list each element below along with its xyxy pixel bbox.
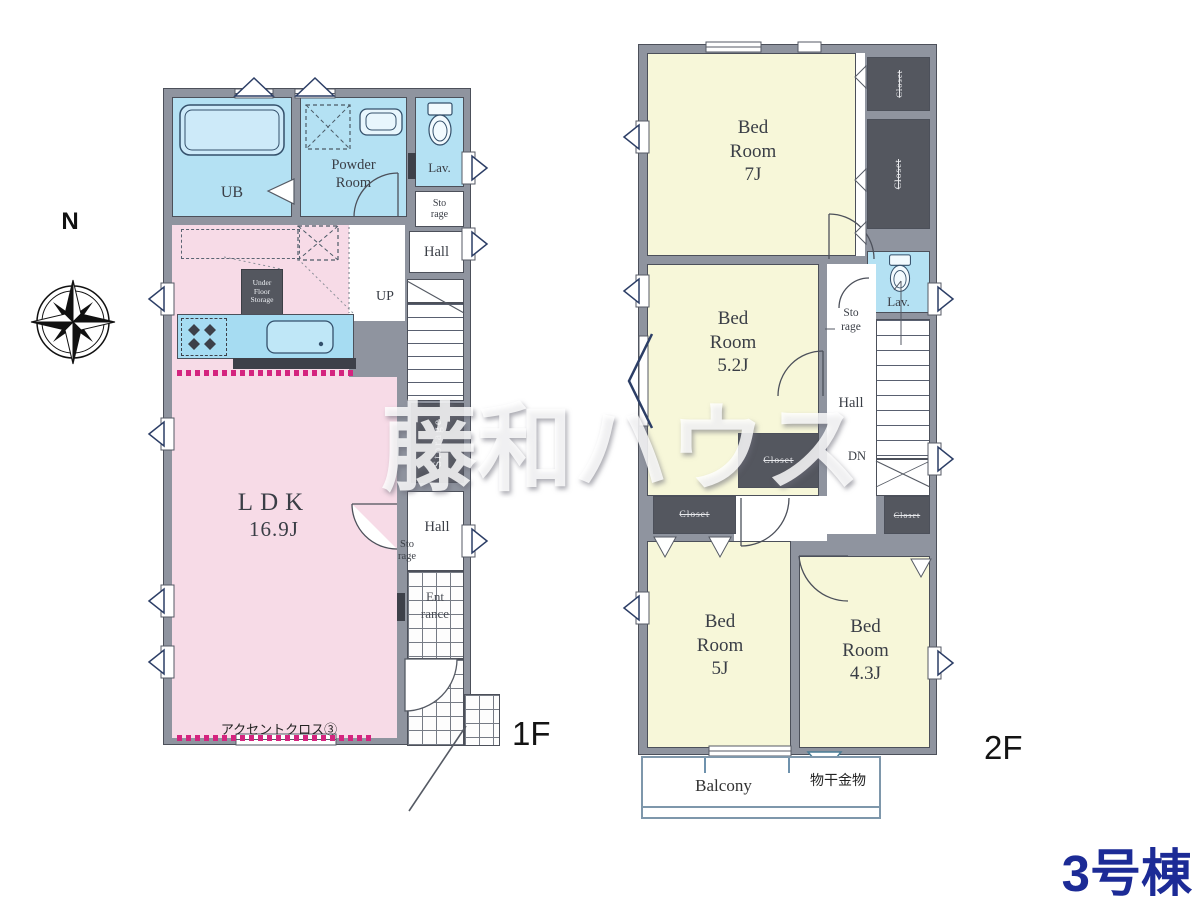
floor2-label: 2F (984, 729, 1023, 767)
closet-2f-small: Closet (884, 496, 930, 534)
entrance-label: Ent rance (407, 589, 463, 623)
room-bed-5j: Bed Room 5J (647, 541, 791, 748)
right-windows (462, 152, 487, 557)
closet-2f-right-label: Closet (894, 159, 904, 189)
toilet-icon (425, 102, 455, 148)
drying-hardware-label: 物干金物 (793, 770, 883, 790)
closet-2f-top: Closet (867, 57, 930, 111)
room-hall-upper-1f-label: Hall (424, 244, 449, 261)
stair-storage-1f: Storage (411, 403, 464, 483)
ldk-label: LDK (194, 489, 354, 517)
room-storage-lower-1f-label: Sto rage (388, 539, 426, 563)
closet-2f-left: Closet (653, 496, 736, 534)
closet-door-strip (856, 53, 865, 256)
kitchen-counter (177, 314, 354, 359)
floorplan-2f: Bed Room 7J Closet Closet Lav. Bed Room … (638, 44, 937, 755)
room-bed-52j-name: Bed Room (668, 307, 798, 355)
room-bed-43j-size: 4.3J (804, 663, 927, 685)
room-storage-upper-1f-label: Sto rage (431, 198, 448, 220)
corridor-1f (349, 225, 405, 321)
floorplan-1f: UB Powder Room Lav. Sto rage Hall (163, 88, 471, 745)
kitchen-cabinet (181, 229, 300, 259)
balcony-divider-1 (704, 758, 706, 773)
room-powder: Powder Room (300, 97, 407, 217)
left-windows (149, 283, 174, 678)
stairs-up-label: UP (367, 289, 403, 305)
kitchen-sink-icon (266, 320, 334, 354)
floor1-label: 1F (512, 715, 551, 753)
closet-2f-top-label: Closet (894, 70, 904, 98)
compass-north-label: N (18, 208, 122, 236)
hall-2f (827, 355, 876, 534)
room-ub-label: UB (173, 184, 291, 202)
compass-rose-icon (18, 234, 128, 364)
closet-2f-mid-label: Closet (763, 456, 793, 466)
closet-2f-small-label: Closet (894, 511, 920, 520)
stove-icon (181, 318, 227, 356)
compass: N (18, 208, 128, 358)
counter-front-panel (233, 358, 356, 369)
room-lav-1f-label: Lav. (416, 160, 463, 176)
room-bed-5j-name: Bed Room (658, 610, 782, 658)
balcony-rail (641, 806, 881, 819)
storage-2f-label: Sto rage (828, 307, 874, 335)
room-lav-2f: Lav. (867, 251, 930, 313)
closet-2f-mid: Closet (738, 433, 819, 488)
room-ub: UB (172, 97, 292, 217)
room-bed-7j-size: 7J (678, 164, 828, 186)
porch (407, 659, 464, 746)
room-lav-1f: Lav. (415, 97, 464, 187)
ldk-zone (172, 377, 397, 738)
bathtub-icon (179, 104, 285, 156)
under-floor-storage-label: Under Floor Storage (251, 279, 274, 305)
balcony-label: Balcony (666, 776, 781, 796)
stairs-landing-1f (407, 279, 464, 303)
kitchen-accent-line (177, 370, 357, 376)
toilet-icon-2f (886, 254, 914, 294)
stair-storage-1f-label: Storage (432, 418, 444, 467)
floorplan-canvas: N UB (0, 0, 1200, 900)
accent-cloth-line (177, 735, 373, 741)
ldk-size-label: 16.9J (194, 517, 354, 542)
hall-2f-label: Hall (828, 395, 874, 412)
building-title: 3号棟 (1020, 832, 1192, 900)
stairs-down-landing (876, 459, 930, 496)
room-hall-upper-1f: Hall (409, 231, 464, 273)
sink-icon (359, 108, 403, 136)
room-bed-43j: Bed Room 4.3J (799, 556, 930, 748)
room-bed-43j-name: Bed Room (804, 615, 927, 663)
stairs-down (876, 319, 930, 459)
room-bed-7j-name: Bed Room (678, 116, 828, 164)
closet-2f-right: Closet (867, 119, 930, 229)
closet-2f-left-label: Closet (679, 510, 709, 520)
balcony-divider-2 (788, 758, 790, 773)
room-lav-2f-label: Lav. (868, 294, 929, 310)
hall-2f-lower (734, 496, 827, 541)
room-bed-5j-size: 5J (658, 658, 782, 680)
room-powder-label: Powder Room (301, 156, 406, 192)
stairs-dn-label: DN (841, 449, 873, 464)
porch-extension (464, 694, 500, 746)
room-storage-upper-1f: Sto rage (415, 191, 464, 227)
under-floor-storage: Under Floor Storage (241, 269, 283, 315)
stairs-up (407, 303, 464, 401)
room-bed-7j: Bed Room 7J (647, 53, 856, 256)
room-bed-52j-size: 5.2J (668, 355, 798, 377)
room-hall-lower-1f-label: Hall (411, 519, 463, 536)
